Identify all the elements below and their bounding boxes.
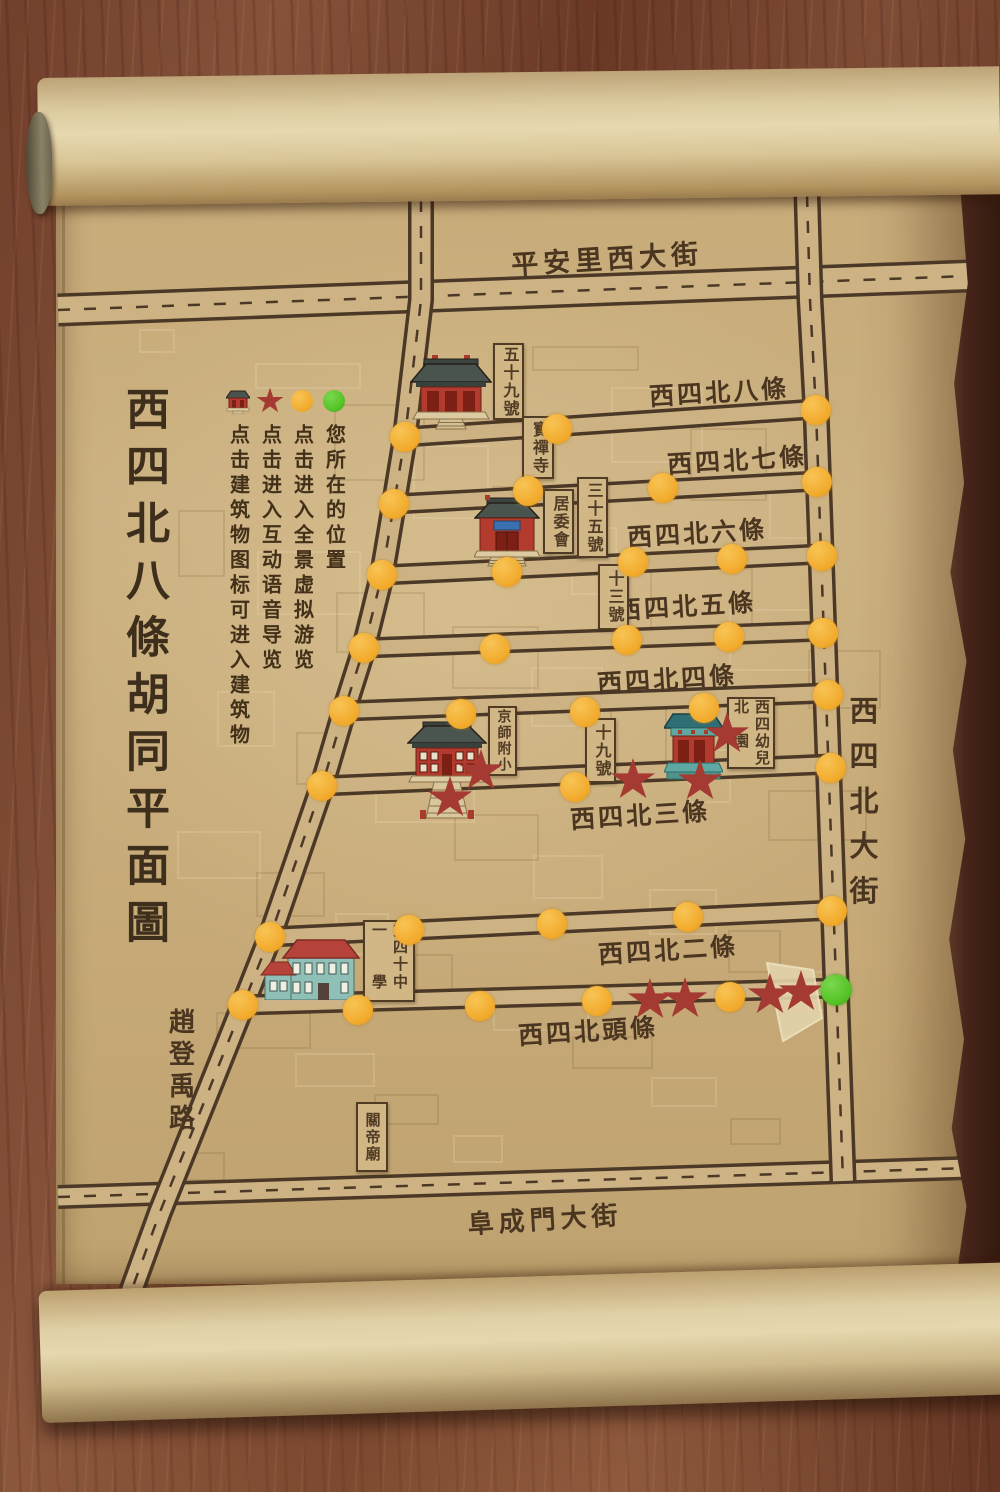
building-label: 關帝廟: [356, 1102, 388, 1172]
panorama-dot[interactable]: [379, 489, 409, 519]
legend-item-location-dot: 您所在的位置: [316, 386, 352, 574]
panorama-dot[interactable]: [612, 625, 642, 655]
street-label: 西四北大街: [840, 696, 882, 921]
panorama-dot[interactable]: [807, 541, 837, 571]
building-label: 三十五號: [577, 477, 608, 558]
building-icon-baochansi-temple-no59[interactable]: [410, 352, 492, 435]
panorama-dot[interactable]: [343, 995, 373, 1025]
panorama-dot[interactable]: [648, 473, 678, 503]
scroll-bottom-roll: [38, 1262, 1000, 1423]
panorama-dot[interactable]: [446, 699, 476, 729]
current-location-dot: [821, 975, 852, 1006]
panorama-dot[interactable]: [673, 902, 703, 932]
audio-star-icon: [256, 386, 284, 416]
panorama-dot[interactable]: [513, 476, 543, 506]
legend-item-panorama-dot: 点击进入全景虚拟游览: [284, 386, 320, 674]
panorama-dot[interactable]: [480, 634, 510, 664]
panorama-dot[interactable]: [813, 680, 843, 710]
panorama-dot[interactable]: [367, 560, 397, 590]
panorama-dot[interactable]: [717, 544, 747, 574]
panorama-dot[interactable]: [255, 922, 285, 952]
panorama-dot-icon: [291, 386, 313, 416]
panorama-dot[interactable]: [349, 633, 379, 663]
panorama-dot[interactable]: [390, 422, 420, 452]
scroll-top-roll: [37, 66, 1000, 206]
panorama-dot[interactable]: [560, 772, 590, 802]
panorama-dot[interactable]: [715, 982, 745, 1012]
map-title: 西四北八條胡同平面圖: [111, 386, 175, 956]
panorama-dot[interactable]: [570, 697, 600, 727]
panorama-dot[interactable]: [816, 753, 846, 783]
building-label: 居委會: [543, 489, 574, 554]
panorama-dot[interactable]: [582, 986, 612, 1016]
panorama-dot[interactable]: [801, 395, 831, 425]
panorama-dot[interactable]: [817, 896, 847, 926]
panorama-dot[interactable]: [492, 557, 522, 587]
building-label: 十九號: [585, 718, 616, 783]
panorama-dot[interactable]: [329, 696, 359, 726]
panorama-dot[interactable]: [714, 622, 744, 652]
panorama-dot[interactable]: [802, 467, 832, 497]
panorama-dot[interactable]: [808, 618, 838, 648]
panorama-dot[interactable]: [394, 915, 424, 945]
panorama-dot[interactable]: [542, 414, 572, 444]
hutong-map-screen: 西四北八條胡同平面圖 点击建筑物图标可进入建筑物 点击进入互动语音导览 点击进入…: [0, 0, 1000, 1492]
location-dot-icon: [323, 386, 345, 416]
legend-item-audio-star: 点击进入互动语音导览: [252, 386, 288, 674]
building-label: 五十九號: [493, 343, 524, 420]
legend-item-building: 点击建筑物图标可进入建筑物: [220, 386, 256, 749]
road-hutong-5: [364, 631, 824, 648]
panorama-dot[interactable]: [465, 991, 495, 1021]
panorama-dot[interactable]: [537, 909, 567, 939]
panorama-dot[interactable]: [307, 771, 337, 801]
street-label: 趙登禹路: [162, 1008, 199, 1136]
panorama-dot[interactable]: [689, 693, 719, 723]
panorama-dot[interactable]: [618, 547, 648, 577]
panorama-dot[interactable]: [228, 990, 258, 1020]
building-icon: [226, 386, 250, 416]
